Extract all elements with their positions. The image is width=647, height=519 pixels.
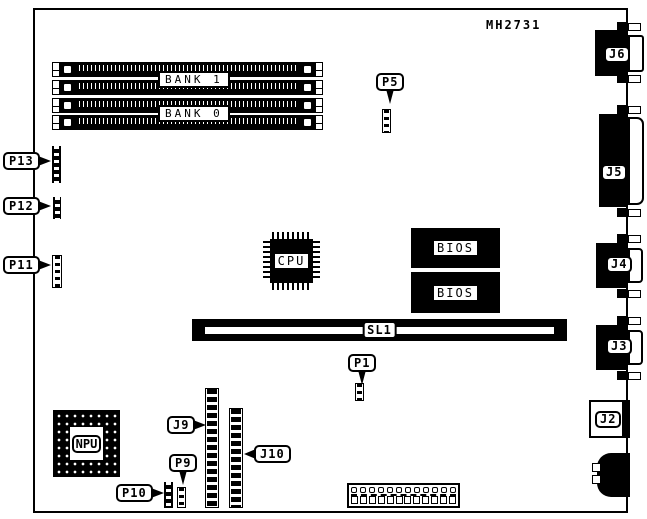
j6-screw-tab — [617, 74, 626, 83]
j3-screw-tab — [628, 317, 641, 325]
terminal-cell — [360, 496, 367, 504]
j6-label: J6 — [604, 46, 630, 63]
j5-label: J5 — [601, 164, 627, 181]
j3-screw-tab — [617, 316, 626, 325]
terminal-cell — [431, 496, 438, 504]
simm-latch — [300, 115, 315, 130]
j3-screw-tab — [617, 371, 626, 380]
p12-callout: P12 — [3, 197, 40, 215]
terminal-block-cell-row — [351, 496, 456, 504]
j5-screw-tab — [617, 208, 626, 217]
j6-screw-tab — [628, 23, 641, 31]
j10-callout: J10 — [254, 445, 291, 463]
simm-endcap — [52, 80, 60, 95]
j4-connector: J4 — [593, 234, 647, 298]
j4-screw-tab — [617, 289, 626, 298]
j2-connector: J2 — [589, 400, 630, 438]
j5-screw-tab — [628, 209, 641, 217]
terminal-block — [347, 483, 460, 508]
terminal-pin — [414, 487, 420, 493]
sl1-slot: SL1 — [192, 319, 567, 341]
j6-screw-tab — [628, 75, 641, 83]
j5-port-body — [599, 114, 628, 207]
keyboard-din-connector — [592, 453, 630, 498]
simm-latch — [60, 62, 75, 77]
terminal-pin — [387, 487, 393, 493]
j10-pin-header — [229, 408, 243, 508]
terminal-cell — [378, 496, 385, 504]
terminal-cell — [387, 496, 394, 504]
p10-callout: P10 — [116, 484, 153, 502]
terminal-cell — [396, 496, 403, 504]
bios-top-label: BIOS — [434, 241, 477, 255]
cpu-pins — [272, 232, 311, 239]
j3-screw-tab — [628, 372, 641, 380]
bios-chip-bottom: BIOS — [411, 272, 500, 313]
j6-port-outline — [628, 35, 644, 72]
p11-pin-header — [52, 255, 62, 288]
bank0-label: BANK 0 — [158, 105, 230, 122]
terminal-pin — [360, 487, 366, 493]
p5-pin-header — [382, 109, 391, 133]
j3-label: J3 — [606, 338, 632, 355]
j4-screw-tab — [628, 235, 641, 243]
terminal-cell — [440, 496, 447, 504]
j4-label: J4 — [606, 256, 632, 273]
p10-pin-header — [164, 482, 173, 508]
terminal-cell — [351, 496, 358, 504]
sl1-label: SL1 — [362, 321, 397, 339]
terminal-cell — [422, 496, 429, 504]
j5-screw-tab — [617, 105, 626, 114]
simm-latch — [60, 98, 75, 113]
simm-latch — [300, 80, 315, 95]
j4-screw-tab — [628, 290, 641, 298]
motherboard-diagram: MH2731 BANK 1 BANK 0 P13 P12 P11 P5 CPU … — [0, 0, 647, 519]
p9-pin-header — [177, 487, 186, 508]
simm-latch — [300, 62, 315, 77]
terminal-pin — [351, 487, 357, 493]
j6-connector: J6 — [593, 22, 647, 84]
terminal-pin — [378, 487, 384, 493]
terminal-pin — [450, 487, 456, 493]
p1-pin-header — [355, 383, 364, 401]
j9-pin-header — [205, 388, 219, 508]
j5-connector: J5 — [593, 105, 647, 218]
cpu-pins — [263, 241, 270, 281]
part-number: MH2731 — [486, 18, 541, 32]
terminal-cell — [369, 496, 376, 504]
simm-endcap — [315, 115, 323, 130]
p9-callout: P9 — [169, 454, 197, 472]
terminal-cell — [404, 496, 411, 504]
simm-endcap — [315, 80, 323, 95]
p13-callout: P13 — [3, 152, 40, 170]
terminal-cell — [449, 496, 456, 504]
p11-callout: P11 — [3, 256, 40, 274]
cpu-pins — [313, 241, 320, 281]
p13-pin-header — [52, 146, 61, 183]
j4-screw-tab — [617, 234, 626, 243]
terminal-pin — [396, 487, 402, 493]
simm-endcap — [315, 62, 323, 77]
terminal-cell — [413, 496, 420, 504]
cpu-body: CPU — [270, 239, 313, 283]
terminal-pin — [423, 487, 429, 493]
j9-callout: J9 — [167, 416, 195, 434]
terminal-pin — [441, 487, 447, 493]
j5-port-outline — [628, 117, 644, 205]
bios-bottom-label: BIOS — [434, 286, 477, 300]
simm-endcap — [52, 115, 60, 130]
terminal-block-screw-row — [351, 487, 456, 493]
p5-callout: P5 — [376, 73, 404, 91]
din-body — [597, 453, 630, 497]
j3-connector: J3 — [593, 316, 647, 380]
npu-label: NPU — [72, 435, 102, 453]
bios-chip-top: BIOS — [411, 228, 500, 268]
npu-socket: NPU — [53, 410, 120, 477]
npu-socket-center: NPU — [70, 427, 103, 460]
terminal-pin — [369, 487, 375, 493]
p1-callout: P1 — [348, 354, 376, 372]
simm-endcap — [52, 98, 60, 113]
din-pin — [592, 475, 601, 484]
bank1-label: BANK 1 — [158, 71, 230, 88]
din-pin — [592, 463, 601, 472]
simm-latch — [60, 80, 75, 95]
simm-endcap — [52, 62, 60, 77]
simm-endcap — [315, 98, 323, 113]
cpu-pins — [272, 283, 311, 290]
simm-latch — [60, 115, 75, 130]
cpu-chip: CPU — [263, 232, 320, 290]
j2-label: J2 — [595, 411, 621, 428]
p12-pin-header — [53, 197, 61, 219]
cpu-label: CPU — [274, 253, 310, 269]
terminal-pin — [405, 487, 411, 493]
simm-latch — [300, 98, 315, 113]
terminal-pin — [432, 487, 438, 493]
j5-screw-tab — [628, 106, 641, 114]
